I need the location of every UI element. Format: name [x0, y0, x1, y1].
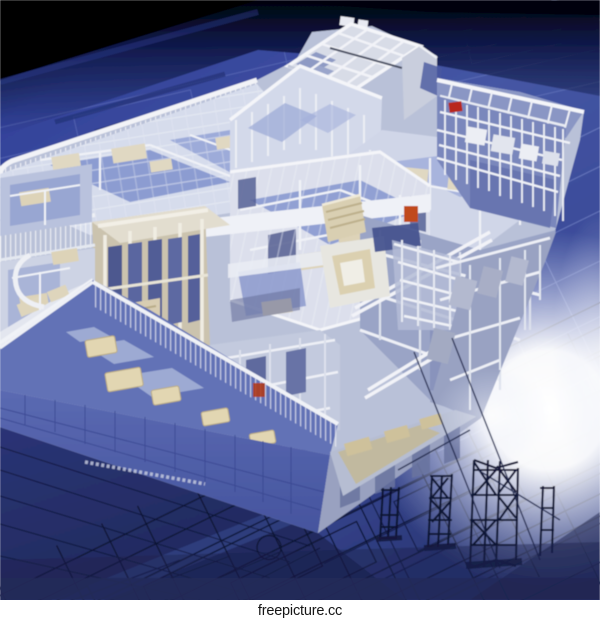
svg-text:freepicture.cc: freepicture.cc [258, 603, 342, 619]
